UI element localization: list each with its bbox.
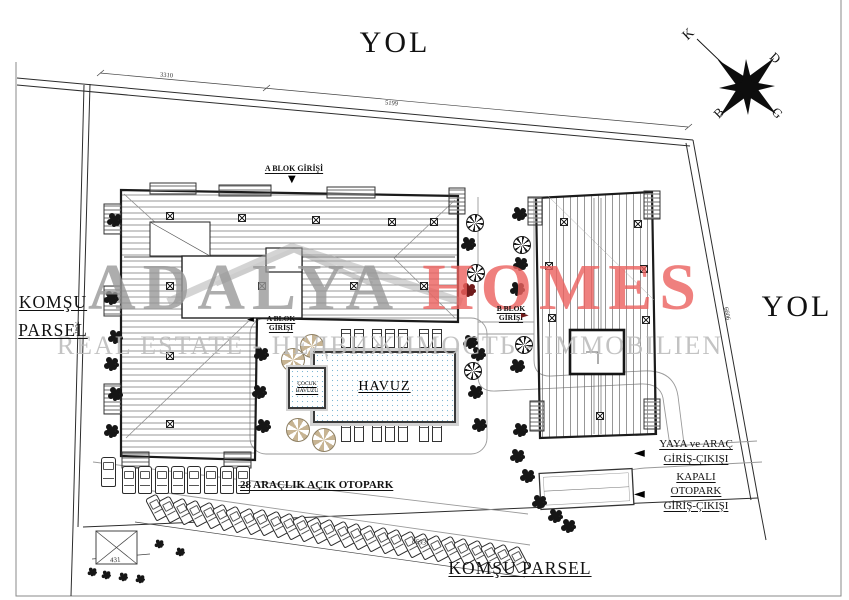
pool-label: HAVUZ bbox=[358, 379, 410, 395]
dimension-bottom: 8693 bbox=[412, 537, 427, 547]
tree-icon bbox=[257, 350, 265, 358]
lounger-icon bbox=[432, 329, 442, 348]
tree-icon bbox=[513, 452, 521, 460]
column-marker bbox=[312, 216, 320, 224]
covered-parking-arrow-icon: ◄ bbox=[634, 487, 645, 501]
tree-icon bbox=[471, 388, 479, 396]
bush-icon bbox=[157, 542, 162, 547]
a-block-side-line2: GİRİŞİ bbox=[258, 324, 304, 333]
tree-icon bbox=[255, 388, 263, 396]
lounger-icon bbox=[341, 329, 351, 348]
lounger-icon bbox=[385, 329, 395, 348]
main-pool: HAVUZ bbox=[313, 351, 456, 423]
bush-icon bbox=[104, 573, 109, 578]
column-marker bbox=[388, 218, 396, 226]
tree-icon bbox=[467, 264, 485, 282]
tree-icon bbox=[107, 360, 115, 368]
neighbor-parcel-left: KOMŞU PARSEL bbox=[12, 288, 94, 344]
kids-pool: ÇOCUK HAVUZU bbox=[288, 367, 326, 409]
column-marker bbox=[634, 220, 642, 228]
column-marker bbox=[642, 316, 650, 324]
car-icon bbox=[171, 466, 185, 494]
column-marker bbox=[560, 218, 568, 226]
a-block-entrance-top-arrow-icon: ▼ bbox=[288, 175, 296, 185]
parasol-icon bbox=[312, 428, 336, 452]
covered-parking-entrance-label: KAPALI OTOPARK GİRİŞ-ÇIKIŞI bbox=[650, 470, 742, 513]
tree-icon bbox=[464, 286, 472, 294]
dimension-service: 431 bbox=[110, 556, 121, 565]
tree-icon bbox=[110, 216, 118, 224]
tree-icon bbox=[111, 390, 119, 398]
tree-icon bbox=[515, 336, 533, 354]
neighbor-left-line1: KOMŞU bbox=[12, 288, 94, 316]
covered-line1: KAPALI bbox=[650, 470, 742, 484]
tree-icon bbox=[513, 285, 521, 293]
tree-icon bbox=[464, 240, 472, 248]
lounger-icon bbox=[354, 423, 364, 442]
tree-icon bbox=[111, 333, 119, 341]
tree-icon bbox=[107, 427, 115, 435]
tree-icon bbox=[464, 362, 482, 380]
column-marker bbox=[596, 412, 604, 420]
dimension-top-right: 5199 bbox=[385, 99, 399, 108]
kids-pool-label-2: HAVUZU bbox=[296, 388, 319, 395]
tree-icon bbox=[535, 498, 543, 506]
tree-icon bbox=[523, 472, 531, 480]
tree-icon bbox=[516, 260, 524, 268]
lounger-icon bbox=[385, 423, 395, 442]
road-label-top: YOL bbox=[350, 26, 440, 61]
lounger-icon bbox=[419, 423, 429, 442]
bush-icon bbox=[178, 550, 183, 555]
bush-icon bbox=[90, 570, 95, 575]
car-icon bbox=[138, 466, 152, 494]
open-parking-label: 28 ARAÇLIK AÇIK OTOPARK bbox=[240, 479, 393, 492]
pedestrian-line2: GİRİŞ-ÇIKIŞI bbox=[650, 452, 742, 467]
column-marker bbox=[430, 218, 438, 226]
a-block-entrance-side-label: A BLOK GİRİŞİ bbox=[258, 315, 304, 332]
tree-icon bbox=[513, 362, 521, 370]
tree-icon bbox=[474, 350, 482, 358]
column-marker bbox=[166, 212, 174, 220]
tree-icon bbox=[259, 422, 267, 430]
lounger-icon bbox=[398, 423, 408, 442]
column-marker bbox=[545, 262, 553, 270]
covered-line2: OTOPARK bbox=[650, 484, 742, 498]
tree-icon bbox=[466, 214, 484, 232]
column-marker bbox=[258, 282, 266, 290]
covered-parking-ramp bbox=[539, 469, 634, 510]
tree-icon bbox=[516, 426, 524, 434]
dimension-left: 7041 bbox=[73, 321, 80, 334]
pedestrian-entrance-arrow-icon: ◄ bbox=[634, 446, 645, 460]
lounger-icon bbox=[372, 423, 382, 442]
lounger-icon bbox=[372, 329, 382, 348]
car-icon bbox=[101, 457, 116, 487]
car-icon bbox=[187, 466, 201, 494]
lounger-icon bbox=[432, 423, 442, 442]
car-icon bbox=[155, 466, 169, 494]
a-block-entrance-top-label: A BLOK GİRİŞİ bbox=[255, 164, 333, 173]
column-marker bbox=[166, 282, 174, 290]
road-label-right: YOL bbox=[752, 290, 842, 325]
pedestrian-vehicle-entrance-label: YAYA ve ARAÇ GİRİŞ-ÇIKIŞI bbox=[650, 437, 742, 467]
tree-icon bbox=[475, 421, 483, 429]
lounger-icon bbox=[341, 423, 351, 442]
site-plan: HAVUZ ÇOCUK HAVUZU ADALYA HOMES REAL EST… bbox=[0, 0, 849, 600]
bush-icon bbox=[138, 577, 143, 582]
pedestrian-line1: YAYA ve ARAÇ bbox=[650, 437, 742, 452]
neighbor-left-line2: PARSEL bbox=[12, 316, 94, 344]
parasol-icon bbox=[286, 418, 310, 442]
tree-icon bbox=[515, 210, 523, 218]
column-marker bbox=[640, 265, 648, 273]
dimension-top-left: 3310 bbox=[160, 71, 174, 80]
compass-rose-icon bbox=[697, 39, 776, 116]
tree-icon bbox=[564, 522, 572, 530]
column-marker bbox=[548, 314, 556, 322]
tree-icon bbox=[551, 512, 559, 520]
car-icon bbox=[204, 466, 218, 494]
lounger-icon bbox=[398, 329, 408, 348]
car-icon bbox=[122, 466, 136, 494]
tree-icon bbox=[466, 338, 474, 346]
lounger-icon bbox=[419, 329, 429, 348]
column-marker bbox=[350, 282, 358, 290]
kids-pool-label-1: ÇOCUK bbox=[296, 381, 319, 388]
tree-icon bbox=[513, 236, 531, 254]
column-marker bbox=[166, 420, 174, 428]
column-marker bbox=[238, 214, 246, 222]
neighbor-parcel-bottom: KOMŞU PARSEL bbox=[430, 558, 610, 578]
covered-line3: GİRİŞ-ÇIKIŞI bbox=[650, 499, 742, 513]
column-marker bbox=[166, 352, 174, 360]
lounger-icon bbox=[354, 329, 364, 348]
tree-icon bbox=[107, 294, 115, 302]
a-block-entrance-side-arrow-icon: ◄ bbox=[247, 316, 254, 325]
bush-icon bbox=[121, 575, 126, 580]
car-icon bbox=[220, 466, 234, 494]
b-block-entrance-arrow-icon: ► bbox=[521, 311, 529, 321]
column-marker bbox=[420, 282, 428, 290]
